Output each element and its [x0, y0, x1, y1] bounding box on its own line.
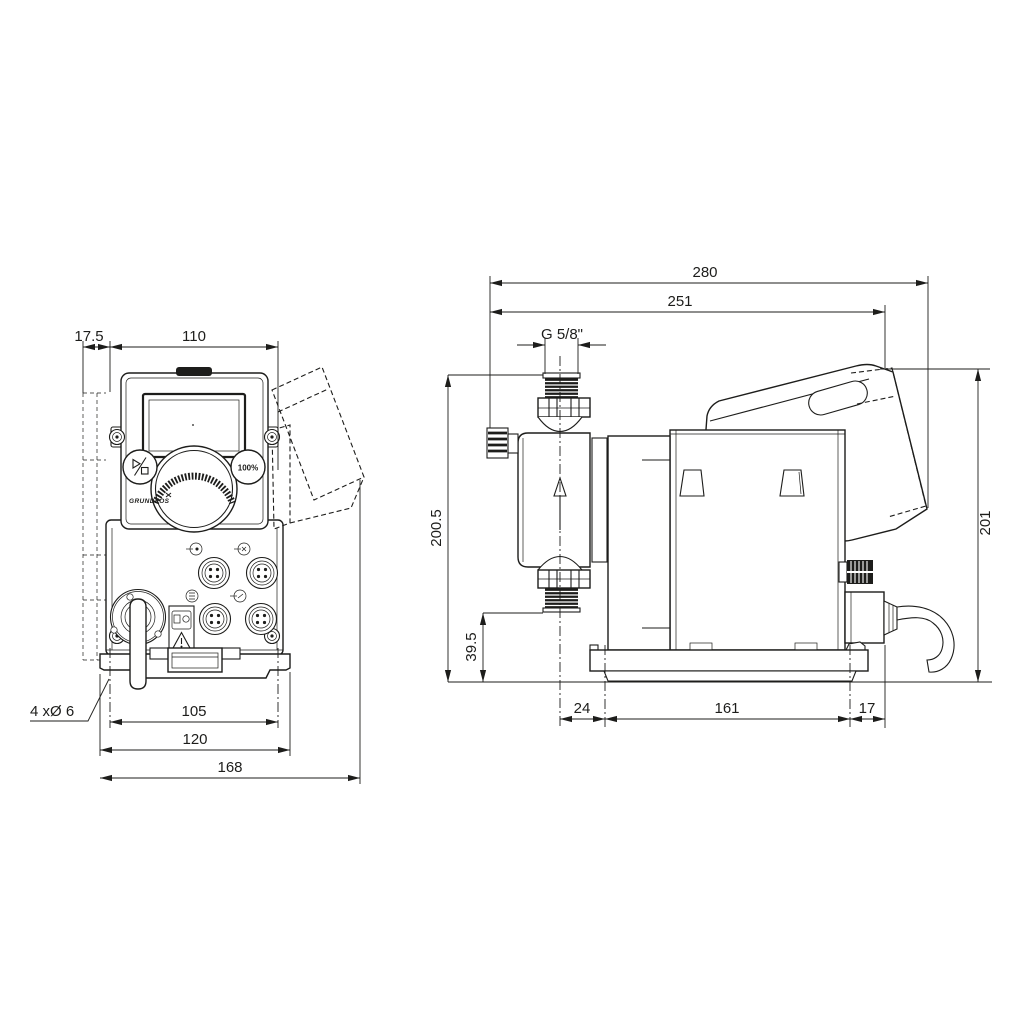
dim-label-height-rear: 201: [977, 510, 994, 535]
dim-label-offset: 17.5: [74, 328, 103, 345]
dim-label-plate-width: 120: [182, 731, 207, 748]
dim-label-depth-to-hood: 251: [667, 293, 692, 310]
start-stop-button[interactable]: [123, 450, 157, 484]
dim-label-overall-depth: 280: [692, 264, 717, 281]
dim-label-base-length: 161: [714, 700, 739, 717]
technical-drawing-page: 100% GRUNDFOS: [0, 0, 1024, 1024]
pump-housing-side: [670, 430, 845, 650]
dim-label-front-offset: 24: [574, 700, 591, 717]
dim-label-overall-width: 168: [217, 759, 242, 776]
control-panel: 100% GRUNDFOS: [110, 367, 280, 532]
connector-socket: [246, 604, 277, 635]
dosing-head: [518, 433, 590, 567]
wall-plate-phantom: [83, 393, 106, 660]
dim-label-valve-height: 39.5: [463, 632, 480, 661]
warning-label: [169, 606, 194, 653]
dim-label-width-top: 110: [182, 328, 206, 345]
discharge-valve: [538, 373, 590, 432]
dim-label-height-overall: 200.5: [428, 509, 445, 547]
head-flange: [592, 436, 670, 650]
dim-label-thread: G 5/8": [541, 326, 583, 343]
dim-label-rear-offset: 17: [859, 700, 876, 717]
connector-socket: [199, 558, 230, 589]
pump-dimensional-drawing: 100% GRUNDFOS: [0, 0, 1024, 1024]
vent-valve-knob: [487, 428, 518, 458]
mounting-holes-label: 4 xØ 6: [30, 703, 74, 720]
panel-top-tab: [176, 367, 212, 376]
connector-socket: [247, 558, 278, 589]
side-view: 280 251 G 5/8" 200.5 39.5 201 24: [428, 264, 994, 728]
max-capacity-button[interactable]: 100%: [231, 450, 265, 484]
grundfos-logo: GRUNDFOS: [129, 498, 170, 505]
connector-socket: [200, 604, 231, 635]
hood-phantom-front: [272, 367, 364, 529]
click-wheel[interactable]: [151, 446, 237, 532]
max-capacity-label: 100%: [238, 464, 258, 473]
dim-label-hole-spacing: 105: [181, 703, 206, 720]
power-cable-side: [897, 606, 954, 672]
strain-relief: [884, 601, 897, 635]
power-cable-front: [130, 599, 146, 689]
front-view: 100% GRUNDFOS: [30, 328, 364, 784]
